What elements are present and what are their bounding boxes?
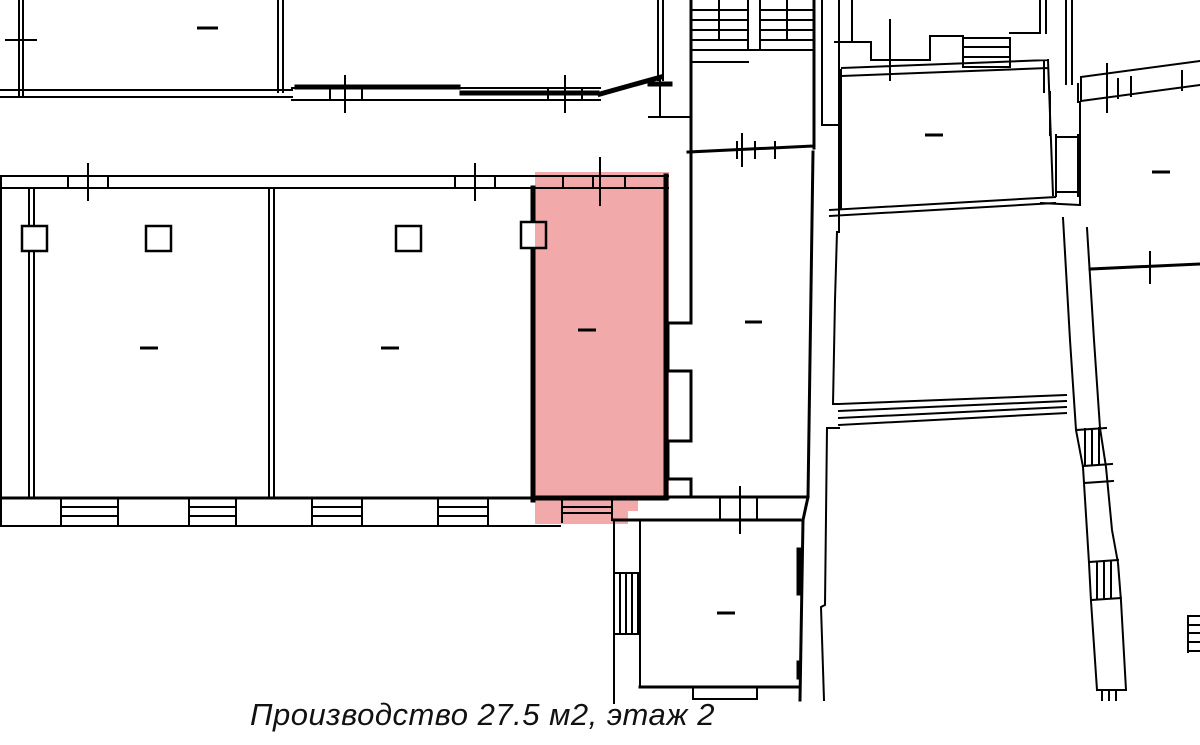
shaft-square xyxy=(396,226,421,251)
window-symbols xyxy=(0,498,612,526)
ramp-hatch xyxy=(839,395,1066,425)
floor-plan-canvas: Производство 27.5 м2, этаж 2 xyxy=(0,0,1200,745)
stairs-top xyxy=(691,0,814,62)
highlighted-room-overlay[interactable] xyxy=(535,172,669,524)
shaft-square xyxy=(22,226,47,251)
floor-plan-drawing xyxy=(0,0,1200,745)
shaft-squares xyxy=(22,222,546,251)
floor-caption: Производство 27.5 м2, этаж 2 xyxy=(250,697,715,733)
stairs-right xyxy=(1063,218,1126,700)
shaft-square xyxy=(146,226,171,251)
